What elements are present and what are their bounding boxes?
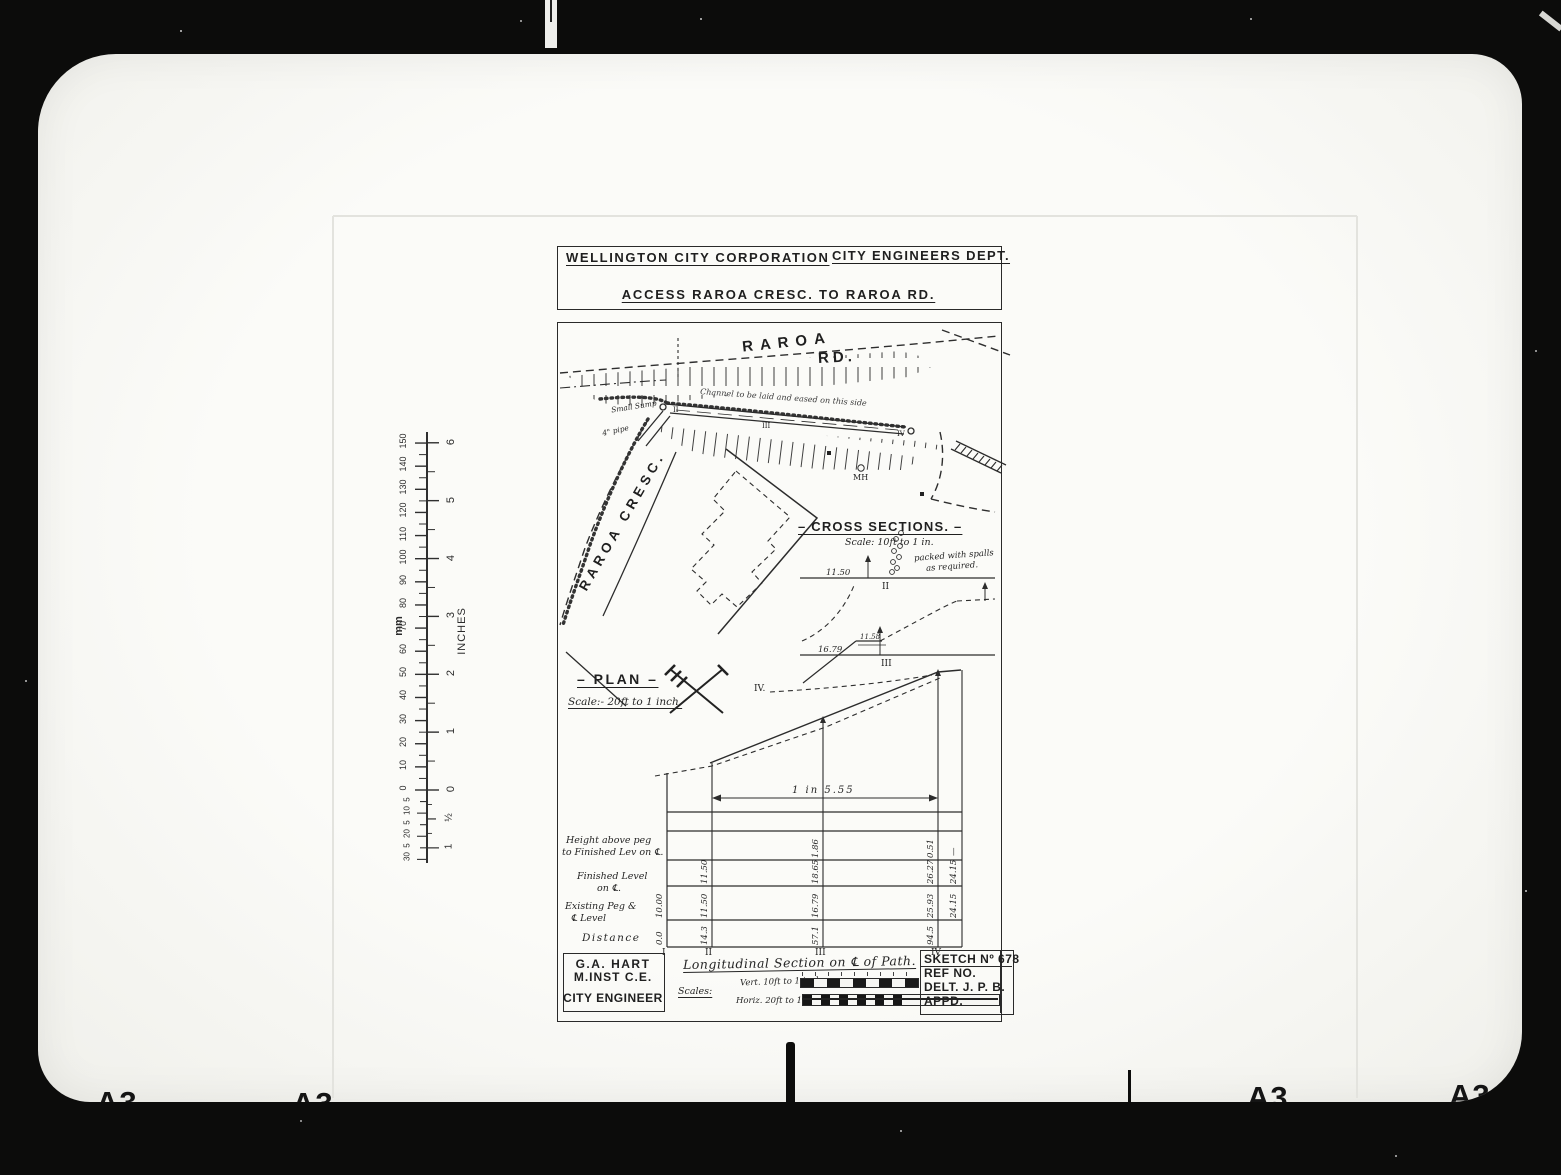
row-label-finished-1: Finished Level	[577, 871, 647, 882]
table-distance-4: 94.5	[926, 926, 936, 945]
film-corner-scratch	[1539, 11, 1561, 32]
ruler-mm-number: 150	[398, 426, 408, 456]
ref-number: REF NO.	[924, 966, 976, 980]
xsec3-numeral: III	[881, 659, 892, 669]
cross-sections-scale: Scale: 10ft to 1 in.	[845, 537, 934, 548]
xsec3-offset: 11.58	[860, 633, 880, 641]
ruler-inch-sub-number: 1	[444, 831, 455, 861]
table-finished-4: 26.27	[926, 860, 936, 884]
ruler-inch-number: 2	[445, 658, 457, 688]
film-mark-thick	[786, 1042, 795, 1102]
engineer-name: G.A. HART	[563, 957, 663, 971]
ruler-mm-sub-number: 30	[403, 842, 412, 872]
ruler-inch-sub-number: ½	[444, 802, 455, 832]
table-height-5: —	[949, 848, 959, 857]
table-finished-2: 11.50	[700, 860, 710, 884]
grade-annotation: 1 in 5.55	[792, 785, 855, 796]
drawing-world: WELLINGTON CITY CORPORATION CITY ENGINEE…	[38, 54, 1522, 1102]
sketch-number: SKETCH Nº 678	[924, 952, 1020, 966]
a3-mark-1: A3	[96, 1085, 138, 1102]
ruler-inch-number: 5	[445, 485, 457, 515]
row-label-existing-1: Existing Peg &	[565, 901, 636, 912]
org-name: WELLINGTON CITY CORPORATION	[566, 250, 829, 265]
vert-scale-bar-ticks	[802, 972, 917, 976]
plan-scale-note: Scale:- 20ft to 1 inch.	[568, 696, 682, 708]
table-existing-1: 10.00	[655, 894, 665, 918]
table-existing-4: 25.93	[926, 894, 936, 918]
xsec4-label: IV.	[754, 684, 765, 694]
film-mark-thin	[1128, 1070, 1131, 1102]
a3-mark-2: A3	[292, 1086, 334, 1102]
row-label-height-1: Height above peg	[566, 835, 651, 846]
delt-field: DELT. J. P. B.	[924, 980, 1005, 994]
table-height-4: 0.51	[926, 839, 936, 858]
table-finished-3: 18.65	[811, 860, 821, 884]
vert-scale-bar	[800, 978, 919, 988]
appd-field: APPD.	[924, 994, 963, 1008]
raroa-rd-label-2: RD.	[818, 348, 857, 367]
plan-mark-iii: III	[762, 422, 770, 430]
row-label-finished-2: on ℄.	[597, 883, 621, 894]
xsec2-level: 11.50	[826, 568, 850, 578]
row-label-distance: Distance	[582, 932, 641, 944]
row-label-height-2: to Finished Lev on ℄.	[562, 847, 663, 858]
xsec2-numeral: II	[882, 582, 889, 592]
a3-mark-4: A3	[1449, 1078, 1491, 1102]
cross-sections-heading: – CROSS SECTIONS. –	[798, 519, 962, 534]
ruler-inch-number: 0	[445, 774, 457, 804]
manhole-label: MH	[853, 473, 868, 482]
scales-label: Scales:	[678, 986, 712, 997]
ruler-mm-label: mm	[393, 611, 405, 641]
xsec3-level: 16.79	[818, 645, 842, 655]
a3-mark-3: A3	[1247, 1080, 1289, 1102]
table-distance-2: 14.3	[700, 926, 710, 945]
ruler-inches-label: INCHES	[456, 601, 468, 661]
ruler-inch-number: 1	[445, 716, 457, 746]
film-notch-slit	[550, 0, 552, 22]
table-existing-2: 11.50	[700, 894, 710, 918]
plan-mark-ii: II	[673, 406, 679, 414]
engineer-title: CITY ENGINEER	[563, 991, 663, 1005]
photograph-area: WELLINGTON CITY CORPORATION CITY ENGINEE…	[38, 54, 1522, 1102]
table-finished-5: 24.15	[949, 860, 959, 884]
plan-mark-iv: IV	[897, 430, 905, 438]
drawing-title: ACCESS RAROA CRESC. TO RAROA RD.	[557, 287, 1000, 302]
table-existing-5: 24.15	[949, 894, 959, 918]
table-distance-1: 0.0	[655, 931, 665, 945]
dept-name: CITY ENGINEERS DEPT.	[832, 248, 1010, 263]
table-height-3: 1.86	[811, 839, 821, 858]
row-label-existing-2: ℄ Level	[571, 913, 606, 924]
film-dust-specks	[180, 30, 182, 32]
plan-label: – PLAN –	[577, 671, 658, 687]
ruler-inch-number: 4	[445, 543, 457, 573]
scanned-film-frame: WELLINGTON CITY CORPORATION CITY ENGINEE…	[0, 0, 1561, 1175]
ruler-inch-number: 6	[445, 427, 457, 457]
table-distance-3: 57.1	[811, 926, 821, 945]
table-existing-3: 16.79	[811, 894, 821, 918]
engineer-qualification: M.INST C.E.	[563, 970, 663, 984]
